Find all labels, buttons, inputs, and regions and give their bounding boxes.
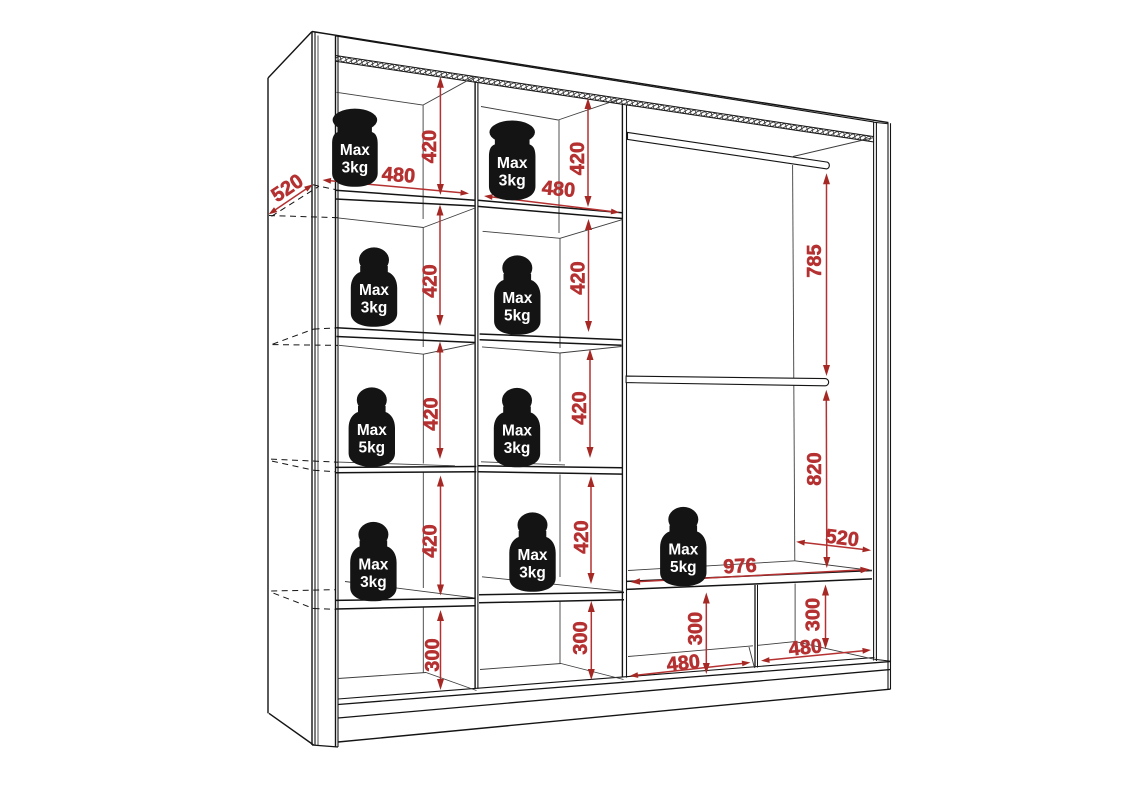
svg-text:Max: Max [502,290,532,307]
svg-text:420: 420 [420,524,442,557]
svg-text:520: 520 [824,526,860,552]
svg-text:5kg: 5kg [670,559,697,576]
svg-text:420: 420 [420,264,442,297]
svg-text:300: 300 [685,612,707,645]
svg-text:420: 420 [567,142,589,175]
svg-text:420: 420 [419,130,441,163]
svg-text:976: 976 [723,555,757,579]
svg-text:420: 420 [569,391,591,424]
svg-text:5kg: 5kg [359,440,386,457]
svg-text:5kg: 5kg [504,308,531,325]
svg-text:480: 480 [788,635,823,660]
svg-text:300: 300 [803,598,825,631]
svg-text:420: 420 [571,520,593,553]
svg-text:3kg: 3kg [504,440,531,457]
svg-text:480: 480 [666,651,701,676]
svg-text:480: 480 [541,177,576,202]
svg-text:420: 420 [568,261,590,294]
svg-text:480: 480 [381,163,416,187]
svg-text:300: 300 [570,621,592,654]
svg-text:3kg: 3kg [342,160,369,177]
svg-text:Max: Max [357,422,387,439]
svg-text:Max: Max [497,155,528,172]
svg-text:820: 820 [804,452,826,485]
svg-text:3kg: 3kg [360,574,387,591]
svg-text:300: 300 [422,638,444,671]
svg-text:Max: Max [668,542,698,559]
svg-text:Max: Max [502,423,532,440]
svg-text:3kg: 3kg [361,300,388,317]
svg-text:Max: Max [358,557,388,574]
svg-text:785: 785 [804,244,826,277]
svg-text:Max: Max [518,547,548,564]
svg-text:420: 420 [421,397,443,430]
svg-text:3kg: 3kg [499,173,526,190]
svg-text:Max: Max [359,282,389,299]
svg-text:3kg: 3kg [519,565,546,582]
svg-text:Max: Max [340,142,370,159]
